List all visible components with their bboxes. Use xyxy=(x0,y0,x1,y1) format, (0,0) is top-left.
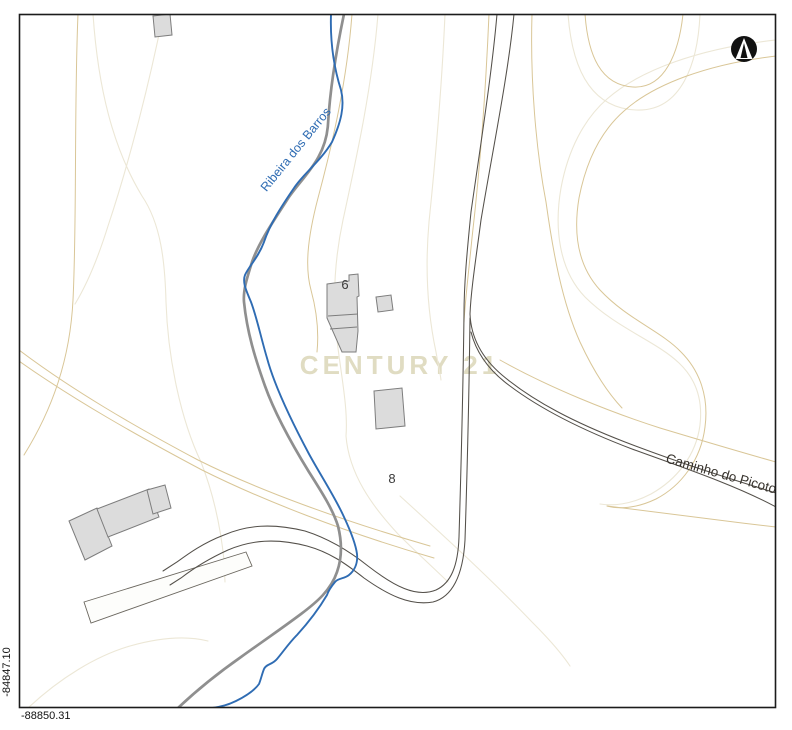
house-number-6: 6 xyxy=(341,277,348,292)
north-arrow-icon xyxy=(731,36,757,62)
coordinate-x-label: -88850.31 xyxy=(21,710,71,722)
cadastral-map: CENTURY 21 xyxy=(0,0,792,730)
building-top xyxy=(153,14,172,37)
house-number-8: 8 xyxy=(388,471,395,486)
coordinate-y-label: -84847.10 xyxy=(1,647,13,697)
building-small xyxy=(376,295,393,312)
map-canvas[interactable]: CENTURY 21 xyxy=(0,0,792,730)
watermark-text: CENTURY 21 xyxy=(300,350,500,380)
building-8 xyxy=(374,388,405,429)
